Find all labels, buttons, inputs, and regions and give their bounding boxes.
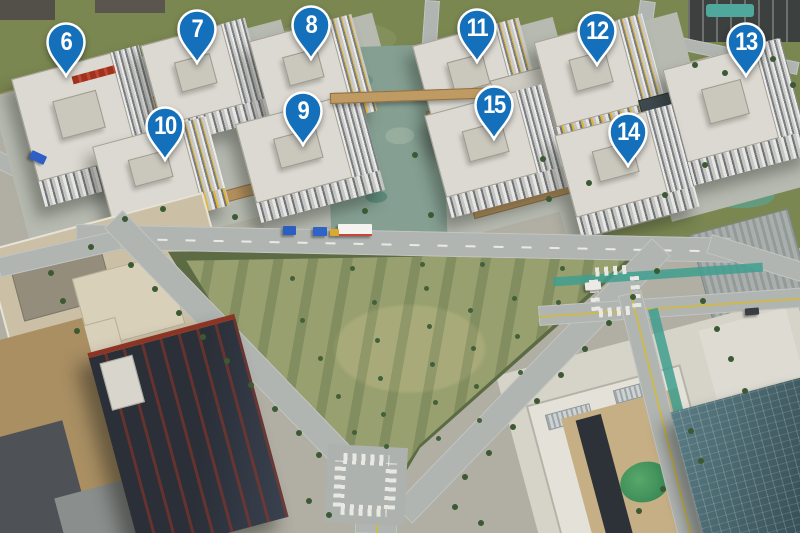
lane-marking (102, 237, 705, 252)
map-pin-6[interactable]: 6 (46, 22, 86, 78)
pin-number: 15 (476, 85, 511, 125)
pin-number: 10 (147, 106, 182, 146)
zebra-stripes (595, 265, 632, 277)
zebra-stripes (333, 460, 346, 507)
crosswalk-south (335, 455, 396, 516)
map-pin-15[interactable]: 15 (474, 85, 514, 141)
map-pin-14[interactable]: 14 (608, 112, 648, 168)
street-trees (0, 0, 6, 6)
map-pin-12[interactable]: 12 (577, 11, 617, 67)
pool-topright (706, 4, 754, 17)
zebra-stripes (589, 274, 601, 311)
pin-number: 13 (728, 22, 763, 62)
map-pin-10[interactable]: 10 (145, 106, 185, 162)
tower-core (100, 355, 145, 411)
car-white (585, 281, 602, 290)
truck-blue (313, 227, 327, 236)
pin-number: 14 (610, 112, 645, 152)
truck-blue (283, 226, 296, 235)
aerial-photo-canvas: 6 7 8 9 10 11 12 13 14 15 (0, 0, 800, 533)
pin-number: 6 (48, 22, 83, 62)
pin-number: 12 (579, 11, 614, 51)
bus (338, 224, 372, 236)
map-pin-8[interactable]: 8 (291, 5, 331, 61)
zebra-stripes (340, 504, 387, 517)
map-pin-7[interactable]: 7 (177, 9, 217, 65)
map-pin-11[interactable]: 11 (457, 8, 497, 64)
map-pin-13[interactable]: 13 (726, 22, 766, 78)
pin-number: 7 (179, 9, 214, 49)
map-pin-9[interactable]: 9 (283, 91, 323, 147)
crosswalk-east (590, 266, 640, 316)
building-strip-top (95, 0, 165, 13)
pin-number: 8 (293, 5, 328, 45)
excavator-yellow (330, 229, 339, 236)
pin-number: 11 (459, 8, 494, 48)
zebra-stripes (343, 453, 390, 466)
pin-number: 9 (285, 91, 320, 131)
building-under-construction-topleft (0, 0, 55, 20)
car-dark (745, 307, 760, 315)
